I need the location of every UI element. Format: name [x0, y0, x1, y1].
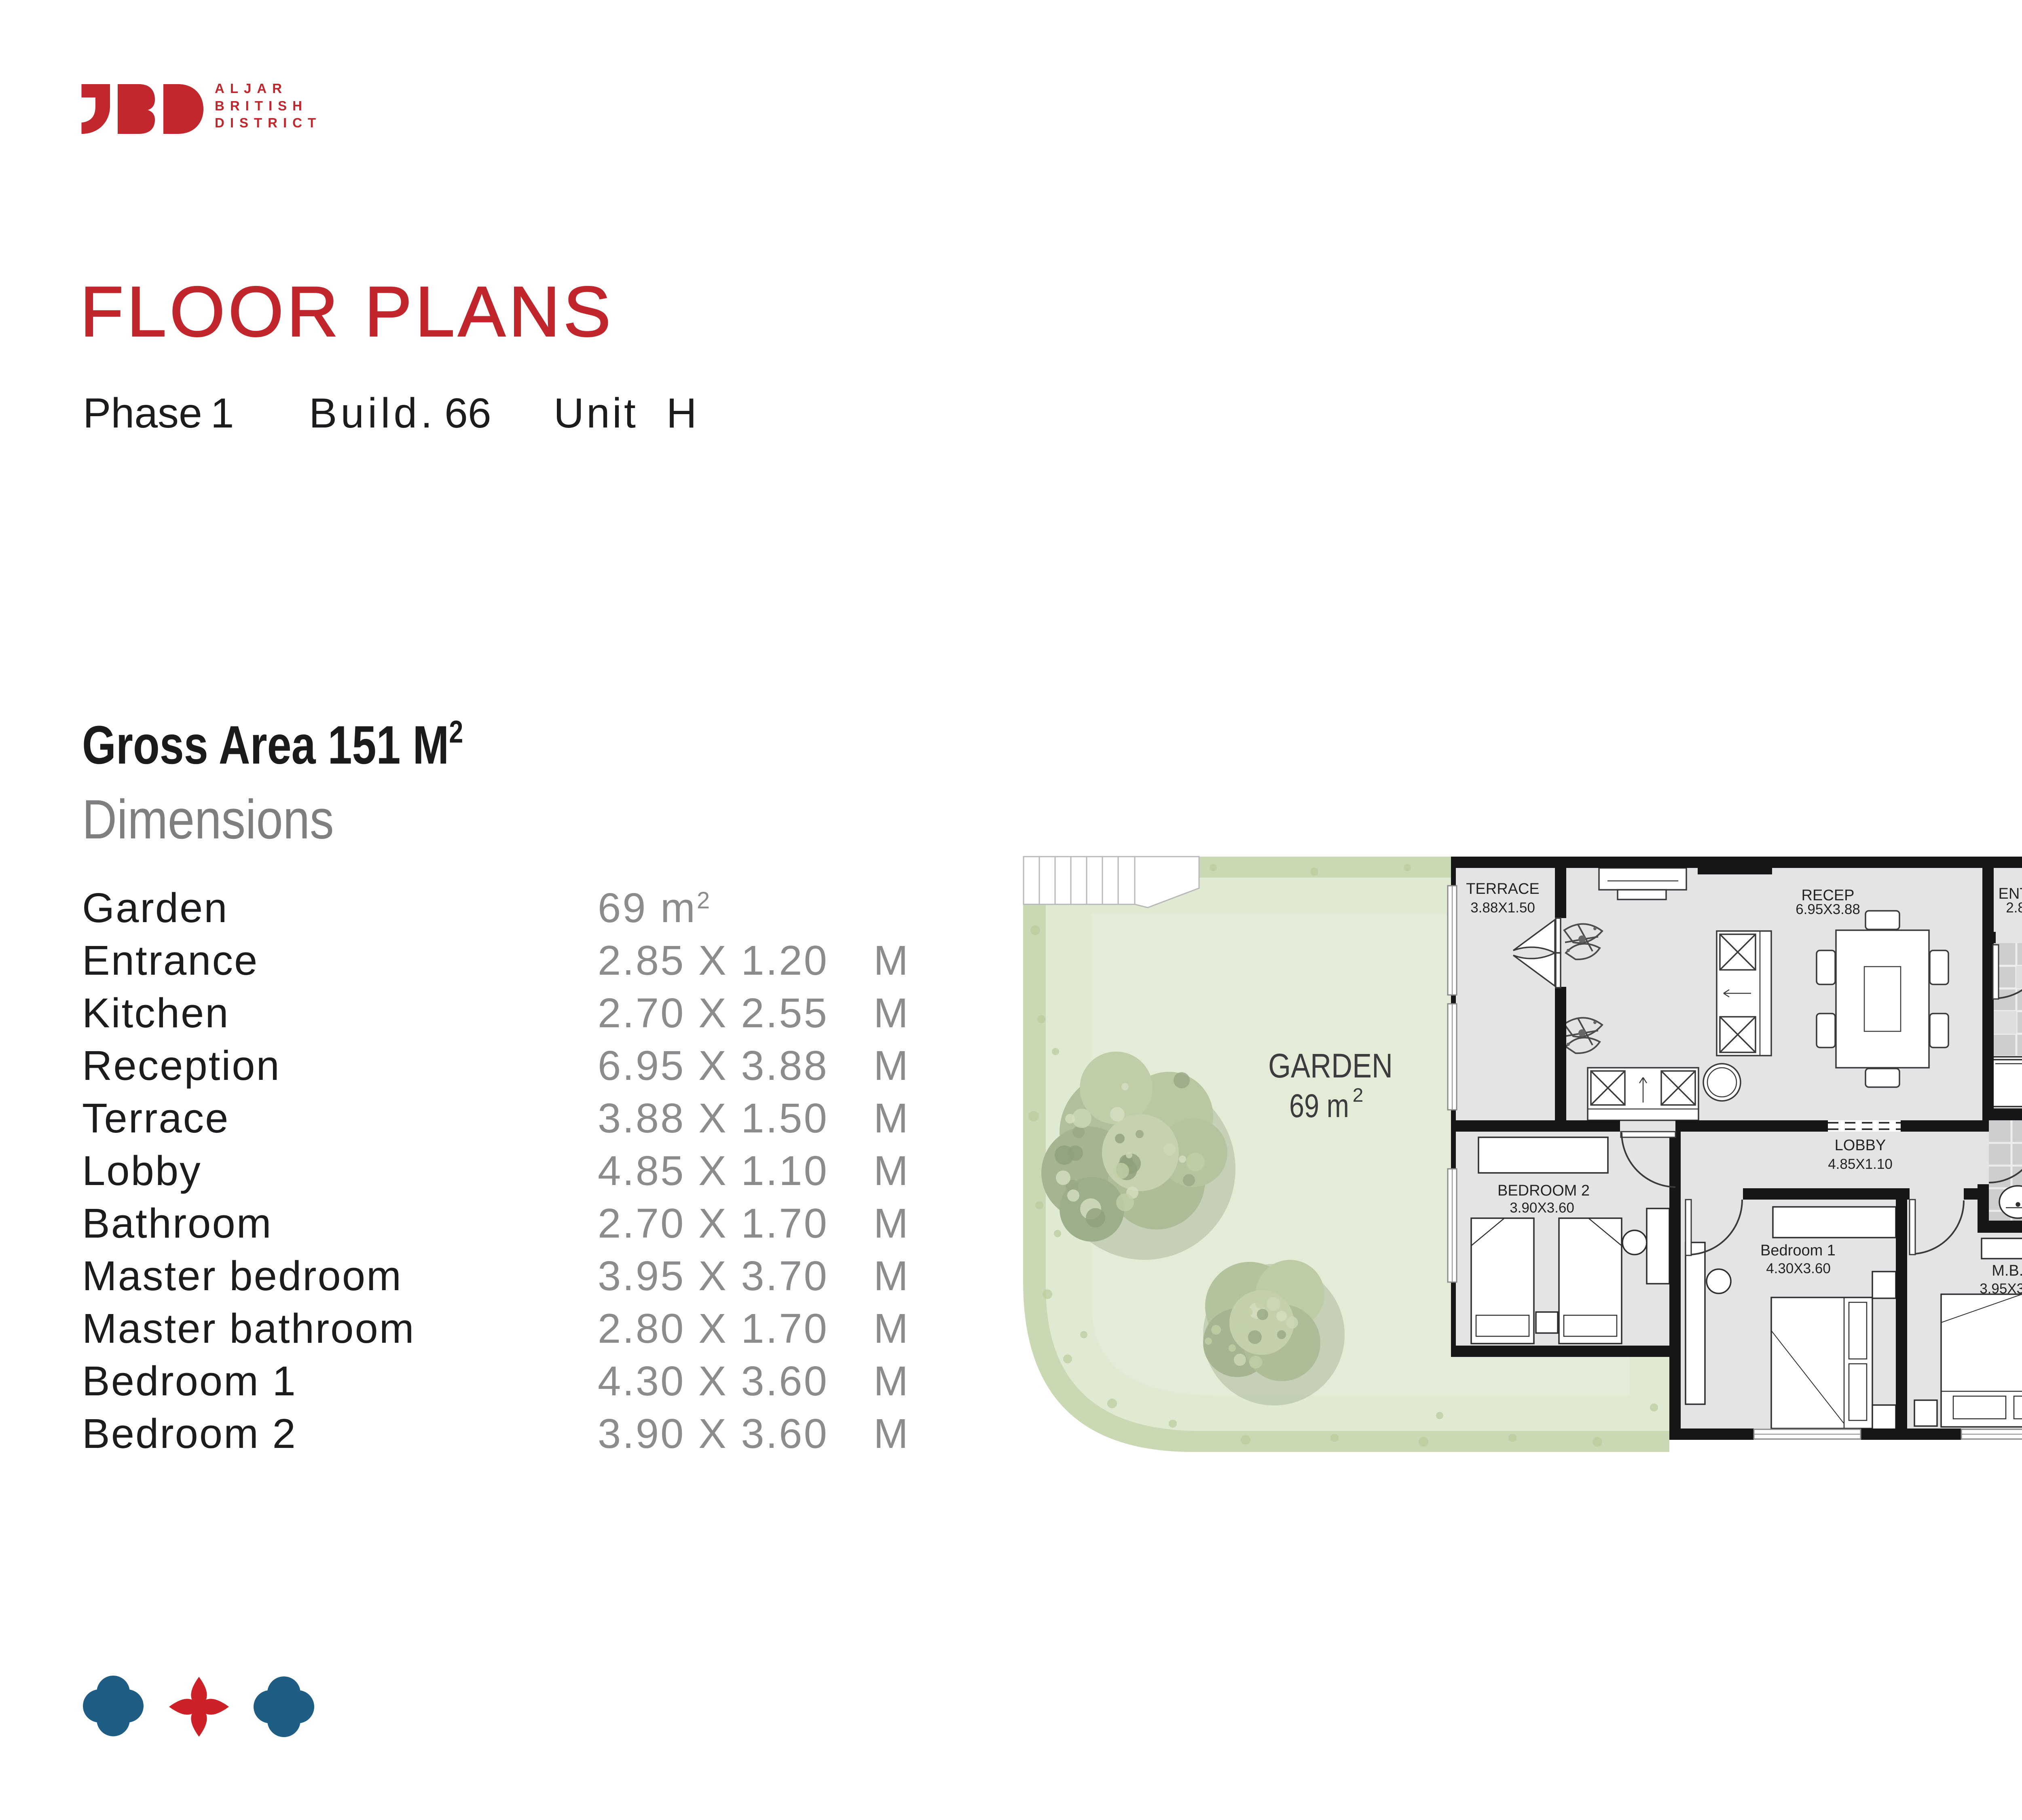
svg-text:TERRACE: TERRACE: [1466, 880, 1540, 897]
svg-text:2: 2: [1353, 1085, 1364, 1106]
svg-text:6.95X3.88: 6.95X3.88: [1796, 902, 1860, 917]
svg-text:GARDEN: GARDEN: [1268, 1047, 1393, 1085]
svg-text:3.95X3.70: 3.95X3.70: [1980, 1281, 2022, 1297]
svg-text:M.B.R: M.B.R: [1992, 1262, 2022, 1279]
svg-text:Bedroom 1: Bedroom 1: [1760, 1242, 1836, 1259]
svg-text:2.85X1.20: 2.85X1.20: [2006, 900, 2022, 916]
svg-text:BEDROOM 2: BEDROOM 2: [1497, 1182, 1590, 1199]
svg-text:69 m: 69 m: [1289, 1088, 1349, 1124]
svg-text:LOBBY: LOBBY: [1835, 1137, 1886, 1154]
svg-text:4.85X1.10: 4.85X1.10: [1828, 1156, 1893, 1172]
svg-text:3.90X3.60: 3.90X3.60: [1510, 1200, 1574, 1216]
svg-text:4.30X3.60: 4.30X3.60: [1766, 1261, 1831, 1276]
svg-text:3.88X1.50: 3.88X1.50: [1470, 900, 1535, 916]
